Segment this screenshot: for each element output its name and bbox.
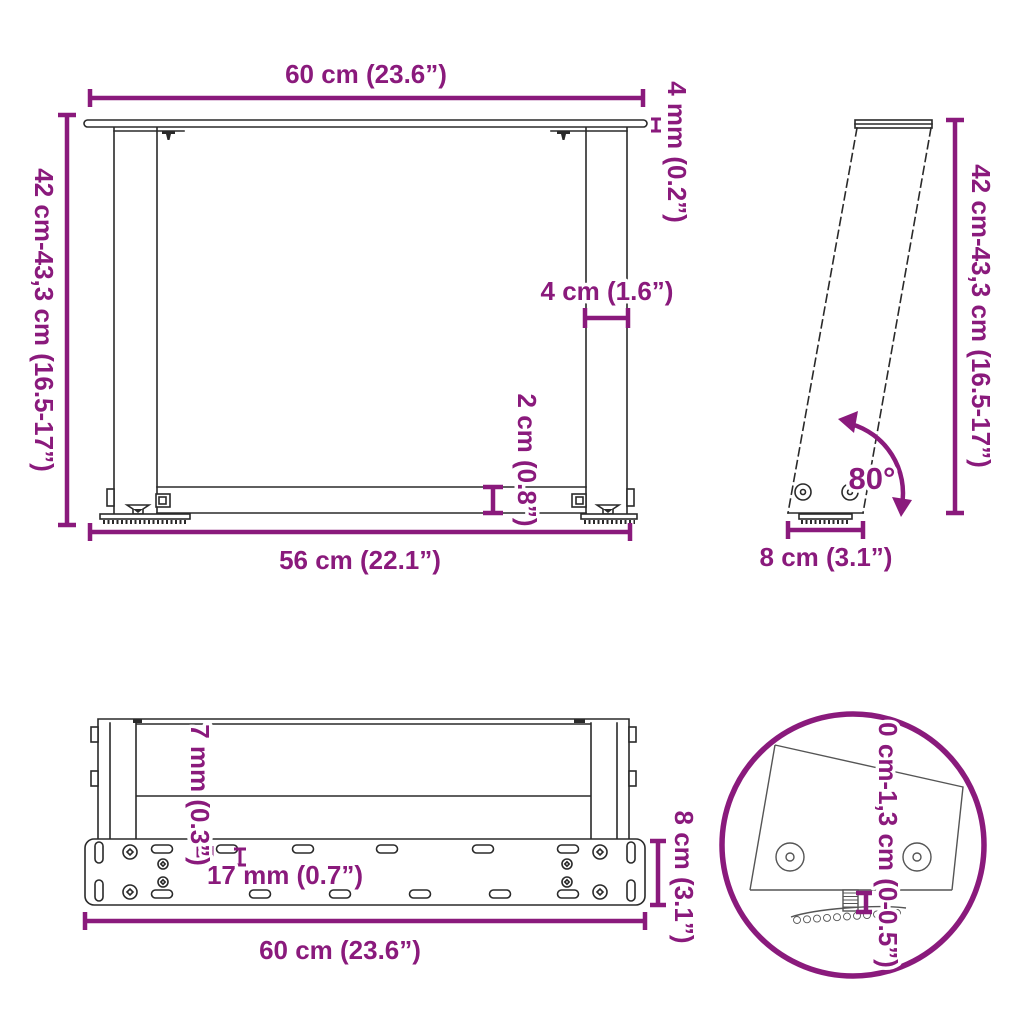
plan-tab-left-2 bbox=[91, 771, 98, 786]
crossbar-clip-left bbox=[156, 494, 170, 507]
table-top-plate bbox=[84, 120, 647, 127]
label-front-height: 42 cm-43,3 cm (16.5-17”) bbox=[29, 168, 59, 472]
dimension-line-side-height bbox=[946, 120, 964, 513]
plan-weld-mark-left bbox=[133, 719, 142, 723]
leg-tab-right bbox=[627, 489, 634, 506]
foot-plate-left bbox=[100, 514, 190, 519]
plan-view-linework bbox=[85, 719, 645, 905]
dimension-marker-crossbar bbox=[483, 487, 503, 513]
side-leg-edges-dashed bbox=[788, 128, 931, 513]
label-adjustment-range: 0 cm-1,3 cm (0-0.5”) bbox=[873, 722, 903, 968]
arc-arrowhead-bottom bbox=[892, 497, 912, 517]
label-slot-length: 17 mm (0.7”) bbox=[207, 860, 363, 890]
label-hole-diameter: 7 mm (0.3”) bbox=[185, 724, 215, 866]
mounting-plate bbox=[85, 839, 645, 905]
leg-tab-left bbox=[107, 489, 114, 506]
label-tilt-angle: 80° bbox=[849, 461, 896, 496]
front-view: 60 cm (23.6”) 4 mm (0.2”) 42 cm-43,3 cm … bbox=[29, 59, 692, 575]
crossbar-clip-right bbox=[572, 494, 586, 507]
bracket-screw-left bbox=[162, 131, 175, 140]
foot-plate-right bbox=[581, 514, 637, 519]
dimension-line-bottom-width bbox=[90, 523, 630, 541]
front-view-linework bbox=[84, 120, 647, 522]
label-plate-depth: 8 cm (3.1”) bbox=[669, 811, 699, 944]
dimension-marker-plate-thickness bbox=[651, 119, 661, 131]
plan-tab-left-1 bbox=[91, 727, 98, 742]
label-front-top-width: 60 cm (23.6”) bbox=[285, 59, 447, 89]
legs bbox=[114, 128, 627, 514]
label-foot-depth: 8 cm (3.1”) bbox=[760, 542, 893, 572]
plan-tab-right-2 bbox=[629, 771, 636, 786]
diagram-page: 60 cm (23.6”) 4 mm (0.2”) 42 cm-43,3 cm … bbox=[0, 0, 1024, 1024]
dimension-line-leg-width bbox=[585, 308, 628, 328]
side-screw-left bbox=[795, 484, 811, 500]
plan-tab-right-1 bbox=[629, 727, 636, 742]
dimension-line-plate-depth bbox=[650, 841, 666, 905]
label-front-leg-width: 4 cm (1.6”) bbox=[541, 276, 674, 306]
side-view: 80° 8 cm (3.1”) 42 cm-43,3 cm (16.5-17”) bbox=[760, 120, 996, 572]
plan-frame bbox=[98, 719, 629, 839]
label-side-height: 42 cm-43,3 cm (16.5-17”) bbox=[966, 164, 996, 468]
detail-view: 0 cm-1,3 cm (0-0.5”) bbox=[722, 714, 984, 976]
dimension-line-height bbox=[58, 115, 76, 525]
plan-weld-mark-right bbox=[574, 719, 585, 723]
detail-circle bbox=[722, 714, 984, 976]
arc-arrowhead-top bbox=[838, 411, 858, 433]
plan-view: 7 mm (0.3”) 17 mm (0.7”) 8 cm (3.1”) 60 … bbox=[85, 719, 699, 965]
front-view-dimensions: 60 cm (23.6”) 4 mm (0.2”) 42 cm-43,3 cm … bbox=[29, 59, 692, 575]
dimension-line-top-width bbox=[90, 89, 643, 107]
side-foot-plate bbox=[799, 514, 852, 519]
side-screw-left-center bbox=[801, 490, 806, 495]
label-front-plate-thickness: 4 mm (0.2”) bbox=[662, 81, 692, 223]
label-front-crossbar: 2 cm (0.8”) bbox=[512, 394, 542, 527]
dimension-line-plate-width bbox=[85, 912, 645, 930]
table-leg-dimension-drawing: 60 cm (23.6”) 4 mm (0.2”) 42 cm-43,3 cm … bbox=[0, 0, 1024, 1024]
label-front-bottom-width: 56 cm (22.1”) bbox=[279, 545, 441, 575]
label-plate-width: 60 cm (23.6”) bbox=[259, 935, 421, 965]
side-view-dimensions: 80° 8 cm (3.1”) 42 cm-43,3 cm (16.5-17”) bbox=[760, 120, 996, 572]
bracket-screw-right bbox=[557, 131, 570, 140]
